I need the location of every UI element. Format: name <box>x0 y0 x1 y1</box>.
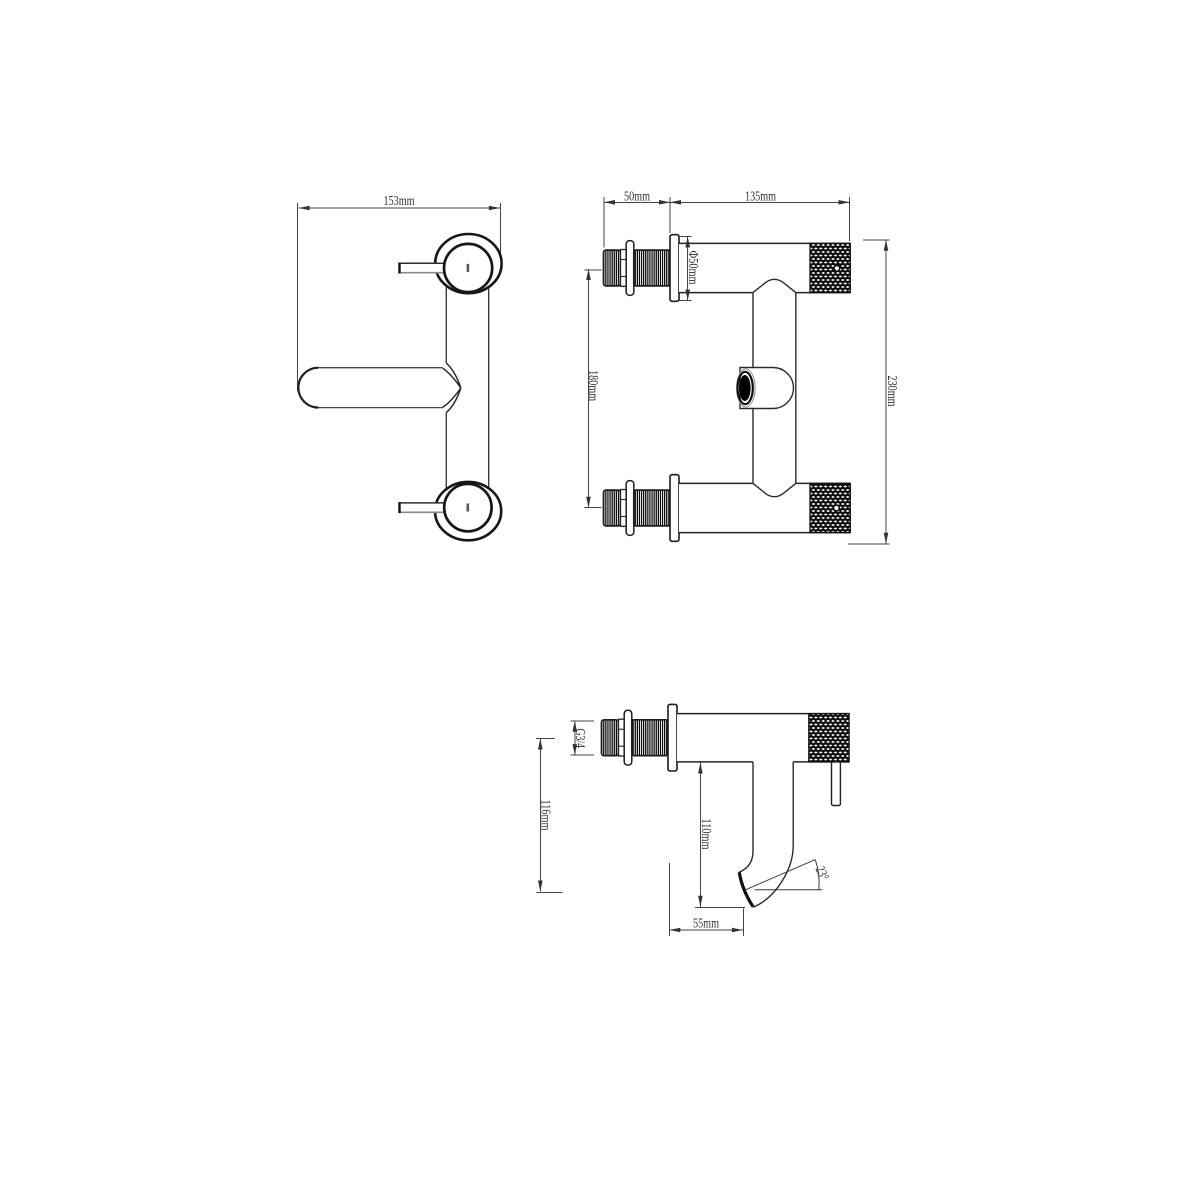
svg-text:50mm: 50mm <box>624 189 650 204</box>
svg-text:55mm: 55mm <box>693 916 719 931</box>
svg-text:G3/4: G3/4 <box>572 728 587 748</box>
svg-text:230mm: 230mm <box>884 376 899 407</box>
svg-text:Φ50mm: Φ50mm <box>685 251 700 285</box>
svg-text:135mm: 135mm <box>745 189 776 204</box>
svg-text:116mm: 116mm <box>537 800 552 831</box>
svg-text:180mm: 180mm <box>585 370 600 401</box>
svg-text:110mm: 110mm <box>698 819 713 850</box>
svg-text:153mm: 153mm <box>384 194 415 209</box>
